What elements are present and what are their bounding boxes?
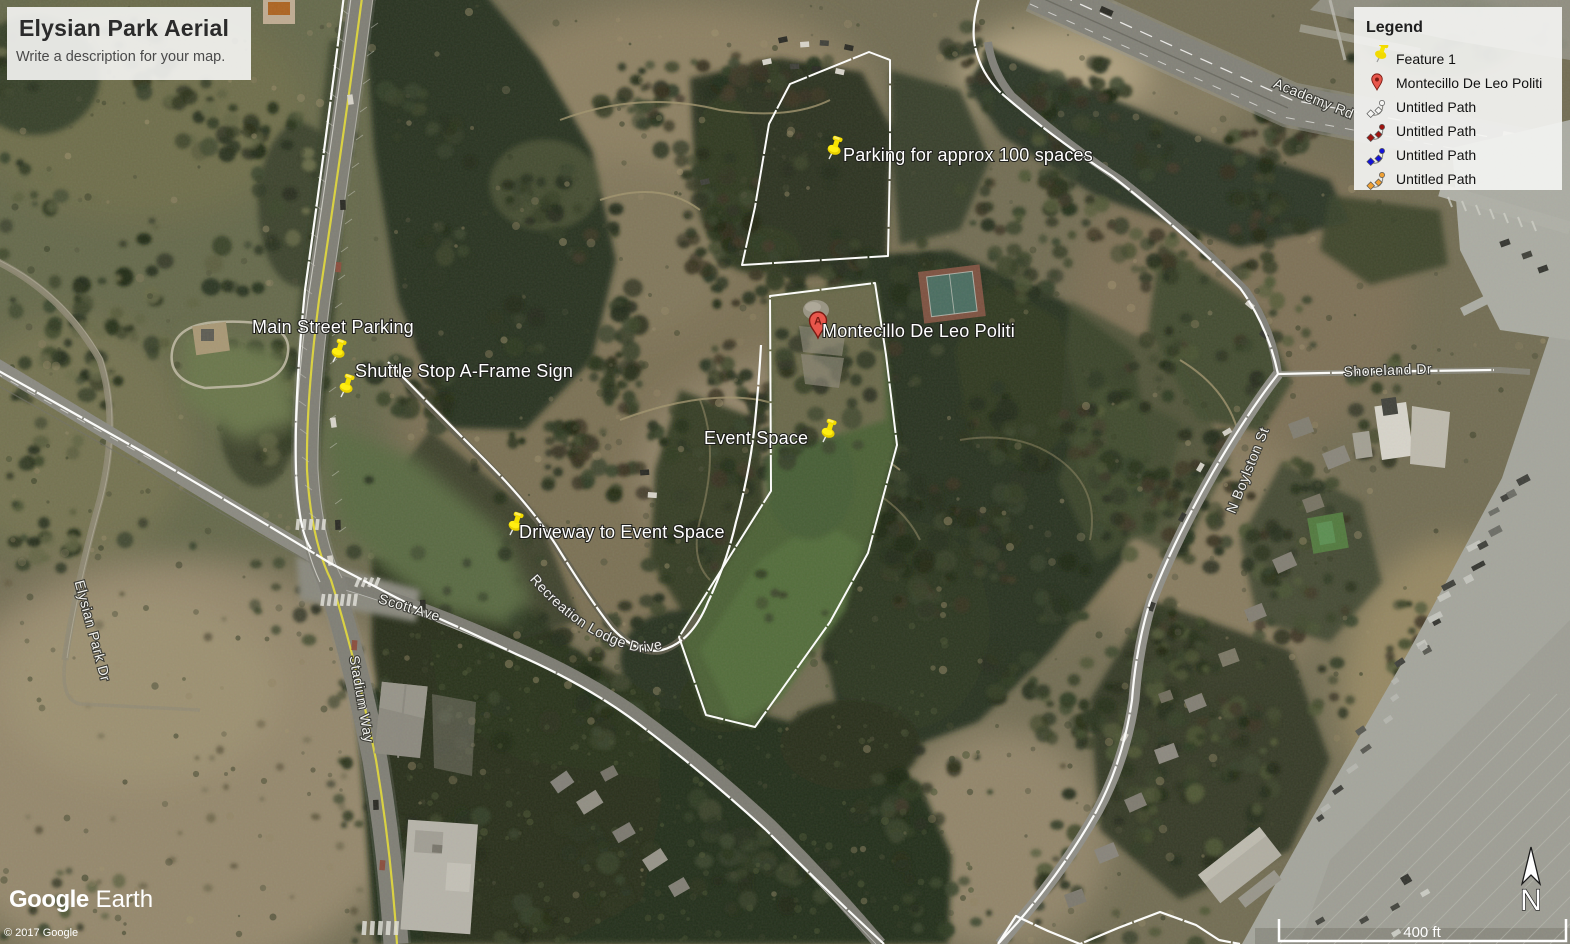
svg-text:400 ft: 400 ft [1403,924,1441,941]
svg-text:Untitled Path: Untitled Path [1396,99,1476,115]
svg-text:Driveway to Event Space: Driveway to Event Space [519,522,725,542]
svg-text:Montecillo De Leo Politi: Montecillo De Leo Politi [822,321,1015,341]
svg-text:Untitled Path: Untitled Path [1396,147,1476,163]
svg-text:Parking for approx 100 spaces: Parking for approx 100 spaces [843,145,1093,165]
svg-text:Untitled Path: Untitled Path [1396,123,1476,139]
svg-text:Main Street Parking: Main Street Parking [252,317,414,337]
svg-text:Shuttle Stop A-Frame Sign: Shuttle Stop A-Frame Sign [355,361,573,381]
svg-text:Montecillo De Leo Politi: Montecillo De Leo Politi [1396,75,1542,91]
svg-text:N: N [1520,884,1542,913]
svg-text:Event Space: Event Space [704,428,808,448]
svg-text:Feature 1: Feature 1 [1396,51,1456,67]
svg-text:Untitled Path: Untitled Path [1396,171,1476,187]
svg-text:Shoreland Dr: Shoreland Dr [1343,360,1432,379]
